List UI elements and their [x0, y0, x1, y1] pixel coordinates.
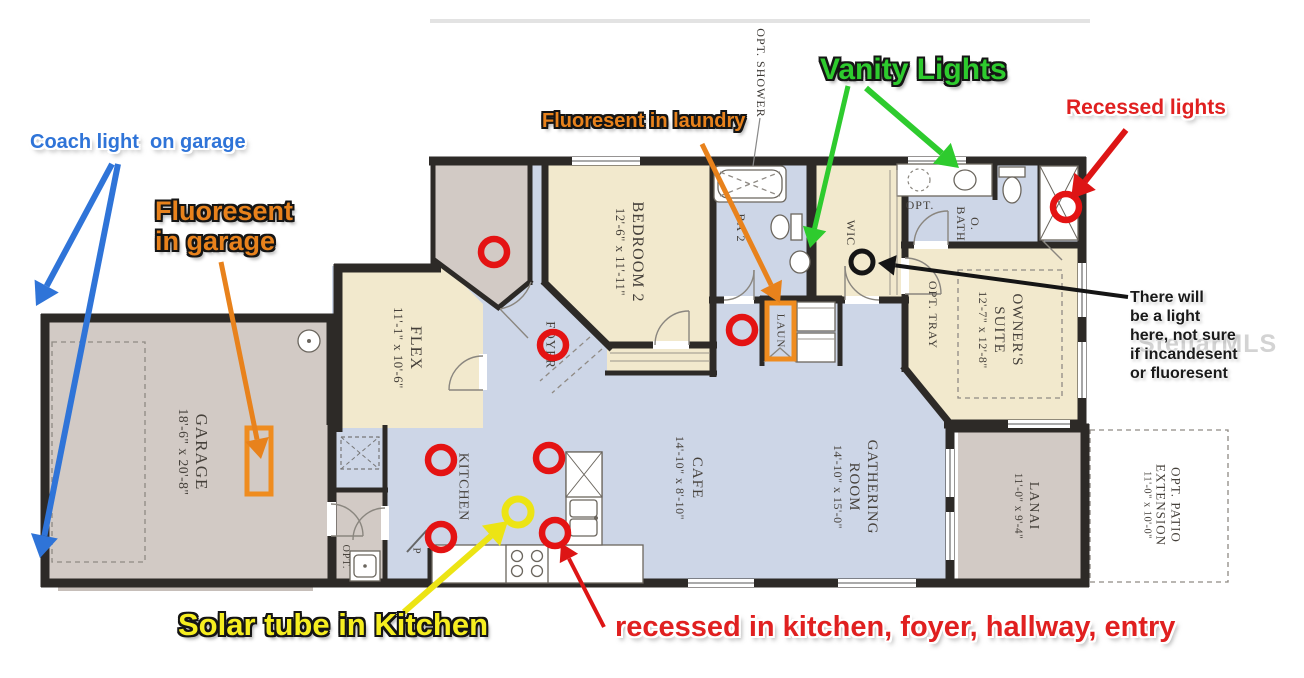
room-label-lanai: LANAI11'-0" x 9'-4"	[1011, 473, 1041, 539]
stove	[506, 545, 548, 583]
bathtub	[714, 166, 786, 202]
room-label-ba2: BA 2	[734, 213, 748, 242]
sink-owners-bath	[954, 170, 976, 190]
scan-artifact	[430, 19, 1090, 23]
room-label-opt-tray: OPT. TRAY	[926, 281, 940, 349]
annotation-solar-tube: Solar tube in Kitchen	[178, 608, 488, 643]
room-label-bedroom2: BEDROOM 212'-6" x 11'-11"	[612, 201, 646, 302]
garage-column	[298, 330, 320, 352]
room-label-flex: FLEX11'-1" x 10'-6"	[390, 307, 424, 389]
utility-sink	[350, 551, 380, 581]
floor-plan-page: StellarMLS GARAGE18'-6" x 20'-8" FLEX11'…	[0, 0, 1304, 678]
annotation-vanity-lights: Vanity Lights	[820, 53, 1007, 87]
room-label-opt-patio: OPT. PATIO EXTENSION11'-0" x 10'-0"	[1141, 464, 1184, 546]
room-label-opt-shower: OPT. SHOWER	[754, 28, 768, 117]
shower	[1040, 166, 1078, 240]
annotation-light-note: There will be a light here, not sure if …	[1130, 288, 1238, 383]
refrigerator	[566, 452, 602, 497]
room-label-gathering-room: GATHERING ROOM14'-10" x 15'-0"	[830, 440, 880, 535]
vanity-owners-bath	[897, 164, 992, 196]
room-label-wic: WIC	[844, 220, 858, 246]
room-label-kitchen: KITCHEN	[454, 453, 471, 521]
room-label-cafe: CAFE14'-10" x 8'-10"	[673, 436, 705, 520]
room-label-pantry: P	[410, 547, 423, 554]
sink-ba2	[790, 251, 810, 273]
annotation-fluorescent-garage: Fluoresent in garage	[155, 196, 293, 256]
room-label-owners-suite: OWNER'S SUITE12'-7" x 12'-8"	[975, 291, 1025, 369]
annotation-recessed-lights: Recessed lights	[1066, 96, 1226, 120]
annotation-recessed-note: recessed in kitchen, foyer, hallway, ent…	[615, 611, 1175, 643]
toilet-ba2	[771, 214, 802, 240]
room-label-owners-bath: O. BATH	[954, 206, 982, 241]
room-label-opt-utility: OPT.	[339, 545, 351, 570]
room-label-garage: GARAGE18'-6" x 20'-8"	[175, 409, 211, 496]
room-label-opt-bath: OPT.	[906, 198, 935, 212]
room-label-foyer: FOYER	[543, 321, 558, 369]
room-label-laundry: LAUN	[774, 314, 787, 349]
annotation-fluorescent-laundry: Fluoresent in laundry	[542, 110, 745, 132]
annotation-coach-light: Coach light on garage	[30, 131, 246, 153]
